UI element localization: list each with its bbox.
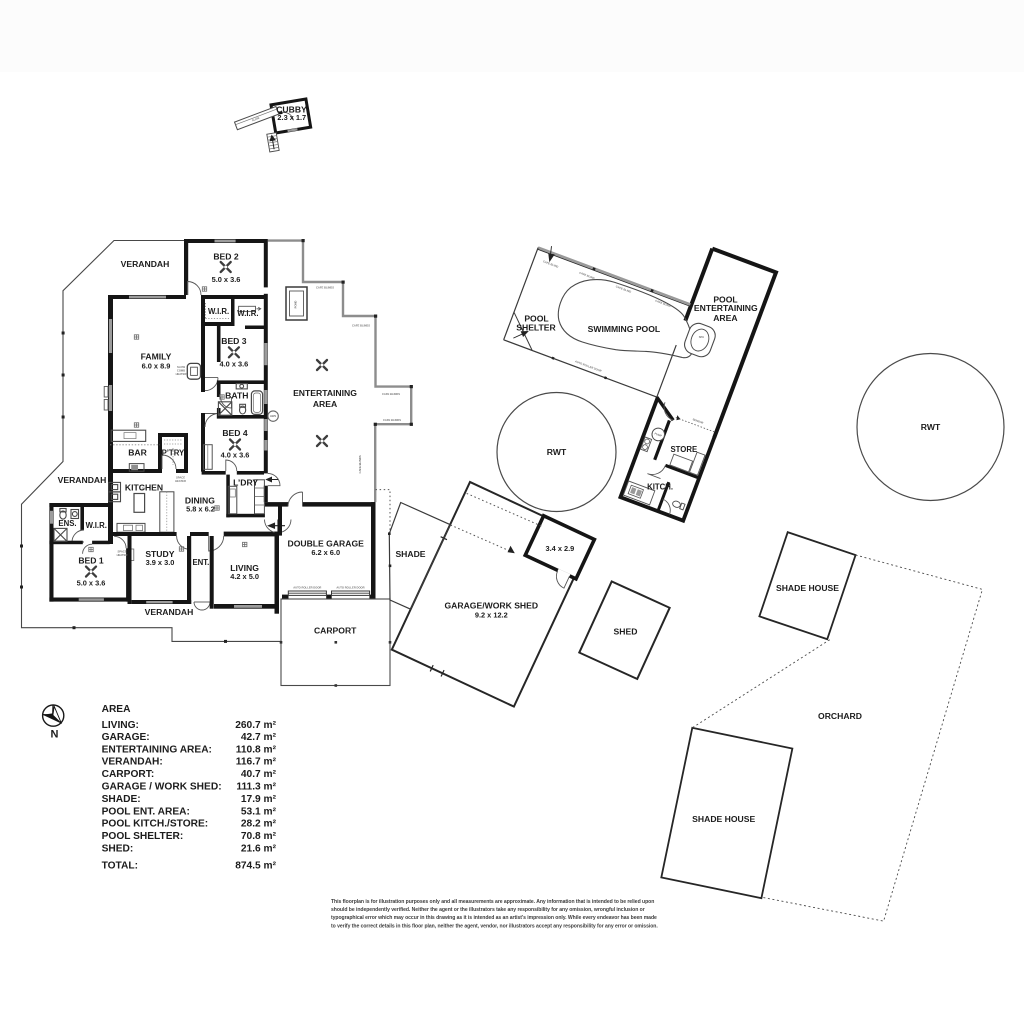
- svg-text:SHADE HOUSE: SHADE HOUSE: [776, 583, 839, 593]
- svg-text:ENS.: ENS.: [58, 519, 76, 528]
- svg-text:4.2 x 5.0: 4.2 x 5.0: [230, 572, 259, 581]
- svg-text:9.2 x 12.2: 9.2 x 12.2: [475, 611, 508, 620]
- svg-text:P’TRY: P’TRY: [162, 449, 185, 458]
- svg-text:CAFE BLINDS: CAFE BLINDS: [352, 324, 370, 328]
- svg-text:LIVING:: LIVING:: [102, 720, 139, 731]
- svg-text:ENTERTAINING: ENTERTAINING: [694, 303, 758, 313]
- svg-text:116.7 m²: 116.7 m²: [236, 757, 277, 768]
- svg-text:CARPORT: CARPORT: [314, 626, 357, 636]
- svg-text:17.9 m²: 17.9 m²: [241, 794, 277, 805]
- svg-text:21.6 m²: 21.6 m²: [241, 844, 277, 855]
- svg-text:GARAGE:: GARAGE:: [102, 732, 150, 743]
- svg-text:VERANDAH: VERANDAH: [121, 259, 170, 269]
- svg-text:GARAGE / WORK SHED:: GARAGE / WORK SHED:: [102, 781, 222, 792]
- svg-text:AREA: AREA: [102, 704, 132, 715]
- svg-text:CAFE BLINDS: CAFE BLINDS: [382, 392, 400, 396]
- svg-text:VERANDAH: VERANDAH: [145, 607, 194, 617]
- svg-text:AREA: AREA: [313, 399, 337, 409]
- svg-text:5.0 x 3.6: 5.0 x 3.6: [212, 275, 241, 284]
- svg-text:3.9 x 3.0: 3.9 x 3.0: [146, 558, 175, 567]
- svg-text:ENTERTAINING: ENTERTAINING: [293, 388, 357, 398]
- svg-text:BAR: BAR: [128, 448, 147, 458]
- svg-text:ENT.: ENT.: [192, 558, 209, 567]
- svg-text:VERANDAH:: VERANDAH:: [102, 757, 163, 768]
- svg-text:260.7 m²: 260.7 m²: [235, 720, 276, 731]
- svg-text:6.0 x 8.9: 6.0 x 8.9: [142, 362, 171, 371]
- svg-text:POOL ENT. AREA:: POOL ENT. AREA:: [102, 807, 190, 818]
- svg-text:4.0 x 3.6: 4.0 x 3.6: [221, 451, 250, 460]
- svg-text:3.4 x 2.9: 3.4 x 2.9: [546, 544, 575, 553]
- svg-text:HEATER: HEATER: [117, 553, 128, 557]
- svg-text:SHADE: SHADE: [395, 549, 425, 559]
- svg-text:VERANDAH: VERANDAH: [58, 475, 107, 485]
- svg-text:POND: POND: [294, 301, 298, 309]
- svg-text:SHADE:: SHADE:: [102, 794, 141, 805]
- svg-text:110.8 m²: 110.8 m²: [236, 745, 277, 756]
- svg-text:5.8 x 6.2: 5.8 x 6.2: [186, 504, 215, 513]
- svg-text:111.3 m²: 111.3 m²: [236, 781, 276, 792]
- svg-text:W.I.R.: W.I.R.: [86, 521, 107, 530]
- svg-text:FAMILY: FAMILY: [141, 352, 172, 362]
- svg-text:typographical error which may: typographical error which may occur in t…: [331, 915, 657, 921]
- svg-text:42.7 m²: 42.7 m²: [241, 732, 277, 743]
- svg-text:SPA: SPA: [699, 335, 704, 339]
- svg-text:SHADE HOUSE: SHADE HOUSE: [692, 814, 755, 824]
- svg-text:KITCH.: KITCH.: [647, 482, 673, 491]
- svg-text:HEATER: HEATER: [176, 372, 187, 376]
- svg-text:W.I.R.: W.I.R.: [208, 307, 229, 316]
- svg-text:AUTO ROLLER DOOR: AUTO ROLLER DOOR: [336, 586, 364, 590]
- svg-text:SHED:: SHED:: [102, 844, 134, 855]
- svg-text:70.8 m²: 70.8 m²: [241, 831, 277, 842]
- svg-text:ORCHARD: ORCHARD: [818, 711, 862, 721]
- svg-text:COMB: COMB: [177, 368, 185, 372]
- svg-text:BED 2: BED 2: [213, 252, 239, 262]
- svg-text:DOUBLE GARAGE: DOUBLE GARAGE: [287, 538, 364, 548]
- svg-text:N: N: [51, 729, 59, 741]
- svg-text:BATH: BATH: [225, 391, 248, 401]
- svg-text:BED 1: BED 1: [78, 555, 104, 565]
- svg-text:40.7 m²: 40.7 m²: [241, 769, 277, 780]
- svg-text:SPACE: SPACE: [176, 476, 185, 480]
- svg-text:AREA: AREA: [713, 313, 737, 323]
- svg-text:W.I.R.: W.I.R.: [237, 309, 258, 318]
- svg-text:AUTO ROLLER DOOR: AUTO ROLLER DOOR: [293, 586, 321, 590]
- svg-text:RWT: RWT: [921, 422, 941, 432]
- svg-text:HEATER: HEATER: [175, 479, 186, 483]
- svg-text:STORE: STORE: [670, 445, 697, 454]
- svg-text:POOL SHELTER:: POOL SHELTER:: [102, 831, 184, 842]
- svg-text:4.0 x 3.6: 4.0 x 3.6: [220, 360, 249, 369]
- svg-text:BED 4: BED 4: [222, 428, 248, 438]
- svg-text:HWS: HWS: [270, 414, 276, 418]
- svg-text:SHELTER: SHELTER: [516, 322, 556, 332]
- svg-text:L’DRY: L’DRY: [233, 478, 258, 488]
- svg-text:SWIMMING POOL: SWIMMING POOL: [588, 324, 661, 334]
- svg-text:should be independently verifi: should be independently verified. Neithe…: [331, 907, 645, 913]
- svg-text:6.2 x 6.0: 6.2 x 6.0: [311, 548, 340, 557]
- svg-text:TOTAL:: TOTAL:: [102, 861, 138, 872]
- svg-text:SLOW: SLOW: [177, 365, 186, 369]
- svg-text:DW: DW: [142, 486, 147, 490]
- svg-text:CAFE BLINDS: CAFE BLINDS: [316, 286, 334, 290]
- svg-text:CAFE BLINDS: CAFE BLINDS: [358, 455, 362, 473]
- svg-text:ENTERTAINING AREA:: ENTERTAINING AREA:: [102, 745, 212, 756]
- svg-text:POOL KITCH./STORE:: POOL KITCH./STORE:: [102, 819, 209, 830]
- svg-text:SHED: SHED: [614, 626, 638, 636]
- svg-text:53.1 m²: 53.1 m²: [241, 807, 277, 818]
- svg-text:874.5 m²: 874.5 m²: [235, 861, 276, 872]
- svg-text:SPACE: SPACE: [117, 550, 126, 554]
- svg-text:This floorplan is for illustra: This floorplan is for illustration purpo…: [331, 899, 654, 905]
- svg-text:BED 3: BED 3: [221, 336, 247, 346]
- svg-text:GARAGE/WORK SHED: GARAGE/WORK SHED: [445, 601, 539, 611]
- svg-text:2.3 x 1.7: 2.3 x 1.7: [277, 113, 306, 122]
- svg-text:RWT: RWT: [547, 447, 567, 457]
- svg-text:CARPORT:: CARPORT:: [102, 769, 155, 780]
- svg-text:to verify the correct details: to verify the correct details in this fl…: [331, 923, 658, 929]
- svg-text:28.2 m²: 28.2 m²: [241, 819, 277, 830]
- svg-text:CAFE BLINDS: CAFE BLINDS: [383, 418, 401, 422]
- svg-text:5.0 x 3.6: 5.0 x 3.6: [77, 578, 106, 587]
